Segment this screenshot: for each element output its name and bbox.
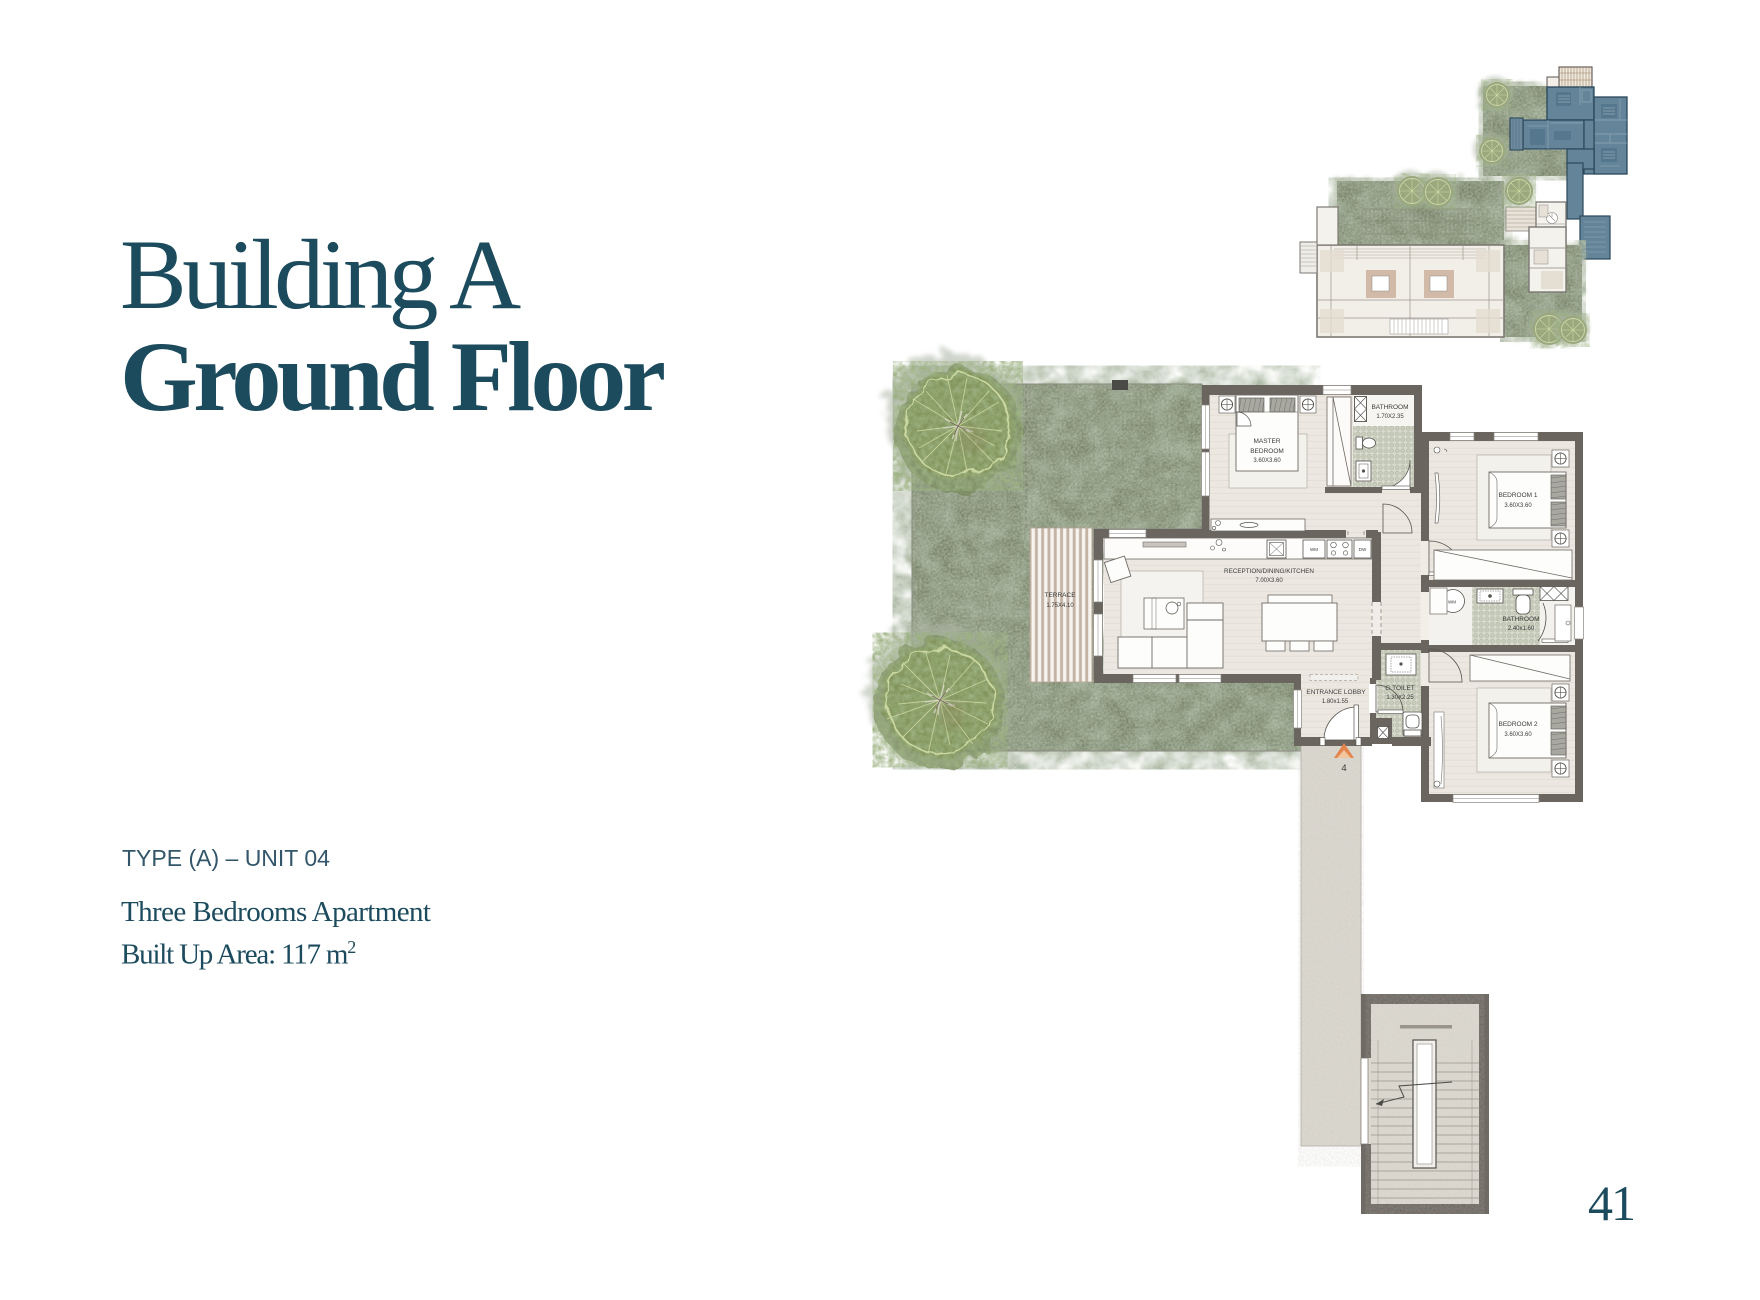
svg-text:2.40x1.60: 2.40x1.60 — [1508, 626, 1535, 632]
svg-text:DW: DW — [1359, 547, 1367, 552]
svg-text:WM: WM — [1310, 547, 1318, 552]
svg-text:3.60X3.60: 3.60X3.60 — [1253, 458, 1281, 464]
svg-text:MASTER: MASTER — [1253, 438, 1280, 445]
svg-text:BEDROOM 2: BEDROOM 2 — [1498, 721, 1537, 728]
svg-text:1.70X2.35: 1.70X2.35 — [1376, 414, 1404, 420]
svg-text:BATHROOM: BATHROOM — [1371, 404, 1408, 411]
svg-text:TERRACE: TERRACE — [1044, 592, 1076, 599]
svg-text:RECEPTION/DINING/KITCHEN: RECEPTION/DINING/KITCHEN — [1224, 568, 1314, 575]
svg-text:1.75X4.10: 1.75X4.10 — [1046, 603, 1074, 609]
svg-text:WM: WM — [1448, 600, 1456, 605]
svg-text:3.60X3.60: 3.60X3.60 — [1504, 503, 1532, 509]
svg-text:1.80x1.55: 1.80x1.55 — [1322, 699, 1349, 705]
svg-text:BEDROOM 1: BEDROOM 1 — [1498, 492, 1537, 499]
svg-text:BEDROOM: BEDROOM — [1250, 448, 1284, 455]
svg-text:4: 4 — [1341, 763, 1346, 774]
svg-text:7.00X3.60: 7.00X3.60 — [1255, 578, 1283, 584]
svg-text:BATHROOM: BATHROOM — [1502, 616, 1539, 623]
svg-text:ENTRANCE LOBBY: ENTRANCE LOBBY — [1306, 689, 1366, 696]
svg-text:3.60X3.60: 3.60X3.60 — [1504, 732, 1532, 738]
